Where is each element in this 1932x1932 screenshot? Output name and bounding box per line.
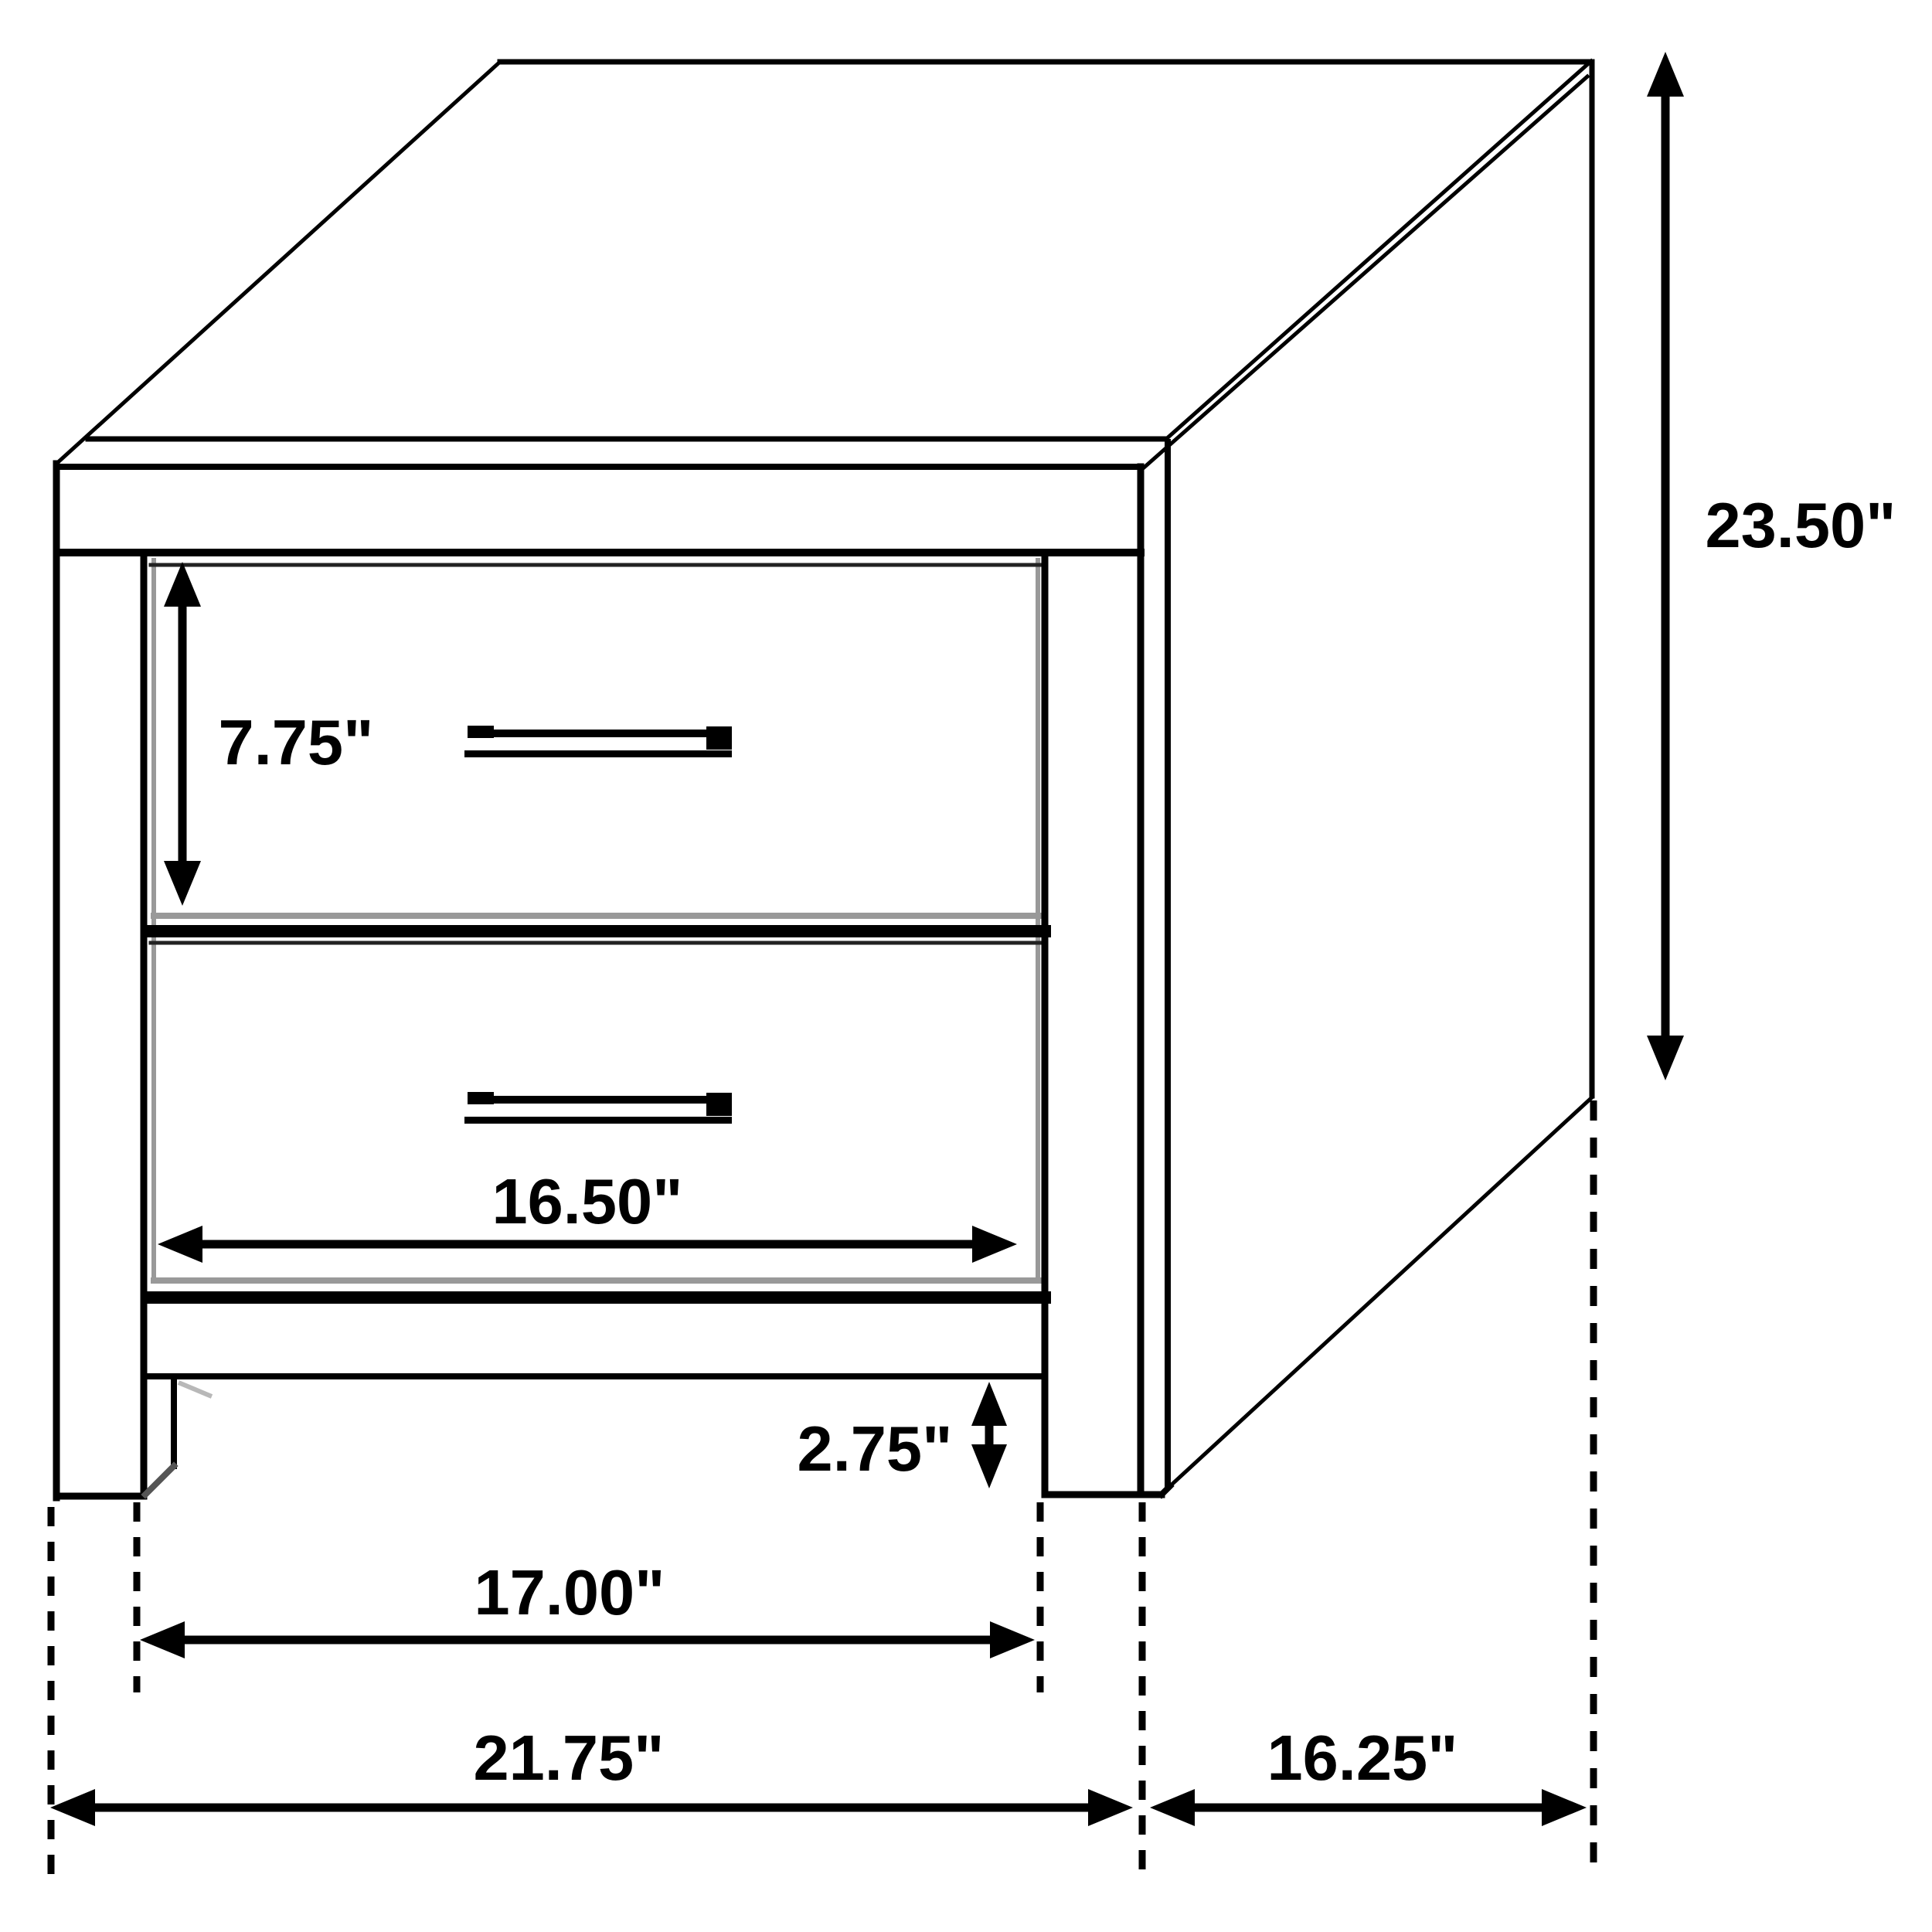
svg-text:23.50": 23.50" <box>1705 489 1896 561</box>
svg-text:21.75": 21.75" <box>473 1722 664 1794</box>
svg-text:16.50": 16.50" <box>492 1165 682 1237</box>
svg-text:16.25": 16.25" <box>1267 1722 1458 1794</box>
svg-text:2.75": 2.75" <box>798 1413 953 1485</box>
svg-text:17.00": 17.00" <box>474 1556 665 1628</box>
svg-text:7.75": 7.75" <box>219 706 374 778</box>
